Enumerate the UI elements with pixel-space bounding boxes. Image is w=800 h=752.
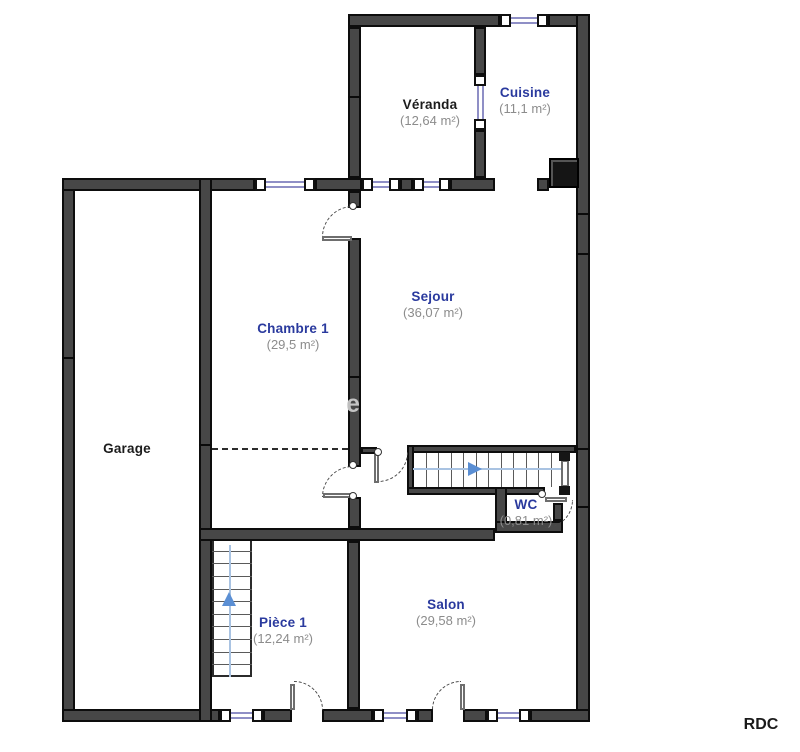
window-frame-end bbox=[439, 178, 450, 191]
room-label-sejour: Sejour bbox=[348, 289, 518, 304]
room-label-garage: Garage bbox=[42, 441, 212, 456]
window-frame-end bbox=[252, 709, 263, 722]
window-frame-end bbox=[500, 14, 511, 27]
room-label-cuisine: Cuisine bbox=[440, 85, 610, 100]
wall bbox=[463, 709, 487, 722]
wall bbox=[474, 27, 486, 75]
window-frame-end bbox=[413, 178, 424, 191]
wall bbox=[263, 709, 292, 722]
window-frame-end bbox=[255, 178, 266, 191]
stair-step bbox=[212, 664, 252, 665]
stair-direction-arrow-icon bbox=[222, 592, 236, 606]
room-label-salon: Salon bbox=[361, 597, 531, 612]
wall bbox=[417, 709, 433, 722]
window-glass bbox=[263, 181, 307, 188]
room-label-chambre1: Chambre 1 bbox=[208, 321, 378, 336]
door-leaf bbox=[322, 236, 352, 241]
door-leaf bbox=[561, 460, 569, 487]
wall-joint bbox=[62, 357, 75, 359]
wall bbox=[348, 14, 500, 27]
wall bbox=[199, 528, 495, 541]
stair-direction-arrow-icon bbox=[468, 462, 482, 476]
door-hinge bbox=[349, 202, 357, 210]
stair-step bbox=[513, 453, 514, 487]
stair-step bbox=[526, 453, 527, 487]
floor-plan: Véranda(12,64 m²)Cuisine(11,1 m²)Chambre… bbox=[0, 0, 800, 752]
door-leaf bbox=[290, 684, 295, 710]
wall bbox=[407, 487, 545, 495]
wall bbox=[576, 14, 590, 722]
stair-step bbox=[451, 453, 452, 487]
door-hinge bbox=[349, 492, 357, 500]
room-area-piece1: (12,24 m²) bbox=[198, 631, 368, 646]
door-leaf bbox=[460, 684, 465, 710]
door-leaf bbox=[374, 454, 379, 483]
chimney-icon bbox=[549, 158, 579, 188]
stair-step bbox=[463, 453, 464, 487]
stair-step bbox=[212, 576, 252, 577]
watermark: e bbox=[341, 390, 365, 419]
door-jamb-block bbox=[559, 486, 570, 495]
stair-direction-line bbox=[413, 468, 563, 470]
window-glass bbox=[508, 17, 540, 24]
open-boundary-dashed-line bbox=[212, 448, 348, 450]
wall-joint bbox=[576, 253, 590, 255]
wall bbox=[450, 178, 495, 191]
wall bbox=[348, 238, 361, 467]
stair-step bbox=[501, 453, 502, 487]
window-frame-end bbox=[362, 178, 373, 191]
door-hinge bbox=[374, 448, 382, 456]
stair-step bbox=[212, 563, 252, 564]
room-label-wc: WC bbox=[441, 497, 611, 512]
window-glass bbox=[381, 712, 409, 719]
wall bbox=[62, 709, 220, 722]
wall bbox=[315, 178, 362, 191]
stair-step bbox=[488, 453, 489, 487]
wall bbox=[407, 445, 576, 453]
door-swing-arc bbox=[322, 206, 353, 237]
window-frame-end bbox=[220, 709, 231, 722]
room-area-salon: (29,58 m²) bbox=[361, 613, 531, 628]
stair-step bbox=[212, 589, 252, 590]
wall bbox=[474, 130, 486, 178]
floor-level-label: RDC bbox=[726, 716, 796, 734]
window-frame-end bbox=[537, 14, 548, 27]
stair-step bbox=[538, 453, 539, 487]
wall-joint bbox=[576, 448, 590, 450]
door-swing-arc bbox=[378, 452, 408, 482]
window-frame-end bbox=[406, 709, 417, 722]
staircase-vertical bbox=[212, 538, 252, 677]
wall-joint bbox=[348, 376, 361, 378]
wall bbox=[348, 497, 361, 528]
door-hinge bbox=[349, 461, 357, 469]
stair-step bbox=[438, 453, 439, 487]
window-frame-end bbox=[389, 178, 400, 191]
window-glass bbox=[495, 712, 522, 719]
door-jamb-block bbox=[559, 452, 570, 461]
wall bbox=[530, 709, 590, 722]
stair-step bbox=[426, 453, 427, 487]
stair-direction-line bbox=[229, 545, 231, 677]
window-frame-end bbox=[519, 709, 530, 722]
room-area-sejour: (36,07 m²) bbox=[348, 305, 518, 320]
door-swing-arc bbox=[432, 681, 461, 710]
room-area-cuisine: (11,1 m²) bbox=[440, 101, 610, 116]
wall bbox=[322, 709, 373, 722]
wall bbox=[400, 178, 413, 191]
door-swing-arc bbox=[294, 681, 323, 710]
window-frame-end bbox=[487, 709, 498, 722]
wall-joint bbox=[576, 213, 590, 215]
stair-step bbox=[551, 453, 552, 487]
stair-step bbox=[212, 652, 252, 653]
wall bbox=[62, 178, 255, 191]
window-frame-end bbox=[304, 178, 315, 191]
window-frame-end bbox=[373, 709, 384, 722]
room-area-chambre1: (29,5 m²) bbox=[208, 337, 378, 352]
window-glass bbox=[228, 712, 255, 719]
room-area-wc: (0,81 m²) bbox=[441, 513, 611, 528]
wall bbox=[537, 178, 549, 191]
stair-step bbox=[212, 551, 252, 552]
room-label-piece1: Pièce 1 bbox=[198, 615, 368, 630]
